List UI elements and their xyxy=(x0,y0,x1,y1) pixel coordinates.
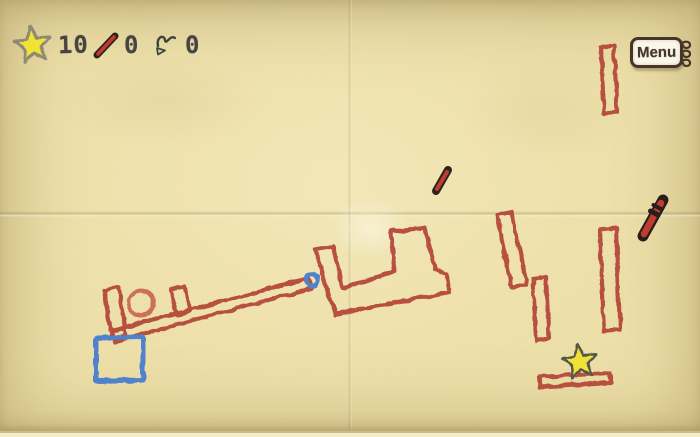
pencil-objects xyxy=(436,170,663,236)
small-pencil[interactable] xyxy=(436,170,448,191)
goal-star xyxy=(562,344,596,378)
star-icon xyxy=(12,24,54,66)
top-right-plank[interactable] xyxy=(601,46,617,113)
tilted-plank[interactable] xyxy=(497,212,527,288)
scribble-count: 0 xyxy=(185,31,201,59)
pencil-slash-icon xyxy=(93,32,120,59)
big-pencil[interactable] xyxy=(643,200,663,236)
stars-count: 10 xyxy=(58,31,90,60)
ball-in-cup[interactable] xyxy=(129,291,154,316)
scribble-icon xyxy=(153,32,181,58)
tall-plank[interactable] xyxy=(600,228,620,332)
pencil-count: 0 xyxy=(124,31,140,59)
blue-square[interactable] xyxy=(96,337,143,381)
menu-button[interactable]: Menu xyxy=(630,37,683,68)
lever-arm[interactable] xyxy=(110,278,313,341)
hud: 10 0 0 xyxy=(12,24,201,66)
game-canvas[interactable]: 10 0 0 Menu xyxy=(0,0,700,437)
short-plank[interactable] xyxy=(533,277,549,340)
menu-button-label: Menu xyxy=(637,44,676,62)
boot-platform[interactable] xyxy=(315,228,449,314)
